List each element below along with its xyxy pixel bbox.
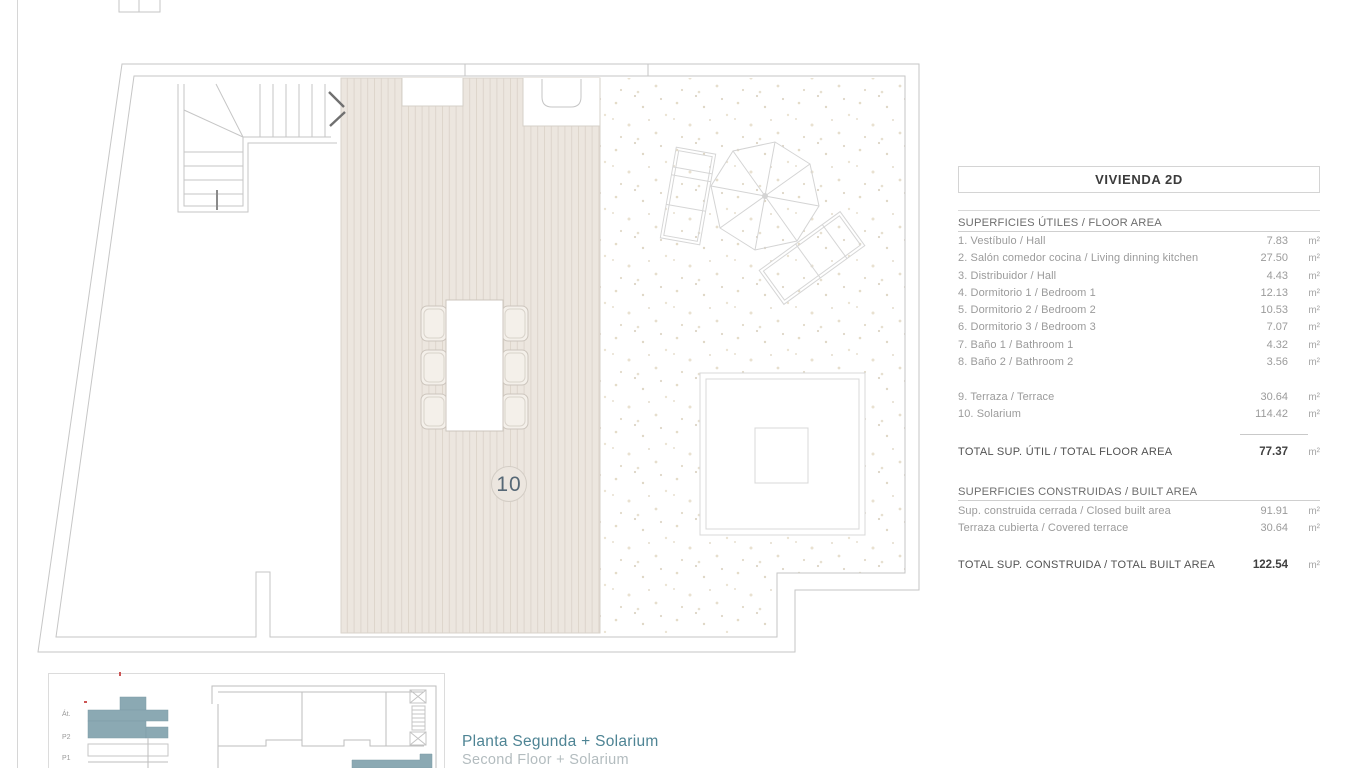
plan-caption-es: Planta Segunda + Solarium	[462, 733, 659, 751]
area-unit: m²	[1294, 354, 1320, 371]
total-built-area-row: TOTAL SUP. CONSTRUIDA / TOTAL BUILT AREA…	[958, 555, 1320, 575]
area-summary-panel: VIVIENDA 2D SUPERFICIES ÚTILES / FLOOR A…	[958, 0, 1320, 768]
main-floor-plan: 10	[38, 64, 919, 652]
room-area-value: 12.13	[1238, 285, 1288, 302]
level-label-p1: P1	[62, 755, 71, 762]
dining-table	[446, 300, 503, 431]
solarium-area	[600, 78, 905, 633]
area-row: 3. Distribuidor / Hall4.43m²	[958, 268, 1320, 285]
room-name: 7. Baño 1 / Bathroom 1	[958, 337, 1238, 354]
deck-recess-center	[523, 78, 600, 126]
total-label: TOTAL SUP. ÚTIL / TOTAL FLOOR AREA	[958, 442, 1238, 462]
floor-area-rows: 1. Vestíbulo / Hall7.83m² 2. Salón comed…	[958, 233, 1320, 371]
room-number-label: 10	[496, 473, 521, 496]
room-area-value: 3.56	[1238, 354, 1288, 371]
area-unit: m²	[1294, 302, 1320, 319]
area-unit: m²	[1294, 406, 1320, 423]
skylight	[700, 373, 865, 535]
area-row: 5. Dormitorio 2 / Bedroom 210.53m²	[958, 302, 1320, 319]
room-name: 3. Distribuidor / Hall	[958, 268, 1238, 285]
divider	[958, 231, 1320, 232]
room-area-value: 114.42	[1238, 406, 1288, 423]
area-unit: m²	[1294, 556, 1320, 576]
built-area-header: SUPERFICIES CONSTRUIDAS / BUILT AREA	[958, 486, 1197, 498]
divider	[958, 210, 1320, 211]
room-area-value: 7.07	[1238, 319, 1288, 336]
section-cut-mark	[119, 672, 121, 676]
unit-title-box: VIVIENDA 2D	[958, 166, 1320, 193]
room-area-value: 30.64	[1238, 389, 1288, 406]
area-row: 10. Solarium114.42m²	[958, 406, 1320, 423]
staircase	[178, 84, 345, 212]
dining-set	[421, 300, 528, 431]
deck-recess-left	[402, 78, 463, 106]
trimmed-frame-mark	[119, 0, 160, 12]
room-name: 6. Dormitorio 3 / Bedroom 3	[958, 319, 1238, 336]
room-name: 8. Baño 2 / Bathroom 2	[958, 354, 1238, 371]
area-row: 2. Salón comedor cocina / Living dinning…	[958, 250, 1320, 267]
area-unit: m²	[1294, 389, 1320, 406]
sum-rule	[1240, 434, 1308, 435]
area-unit: m²	[1294, 233, 1320, 250]
area-row: 8. Baño 2 / Bathroom 23.56m²	[958, 354, 1320, 371]
area-row: 4. Dormitorio 1 / Bedroom 112.13m²	[958, 285, 1320, 302]
room-name: 9. Terraza / Terrace	[958, 389, 1238, 406]
drawing-sheet: 10	[0, 0, 1366, 768]
area-unit: m²	[1294, 319, 1320, 336]
chairs-right	[502, 306, 528, 429]
area-unit: m²	[1294, 520, 1320, 537]
area-row: 9. Terraza / Terrace30.64m²	[958, 389, 1320, 406]
room-name: 5. Dormitorio 2 / Bedroom 2	[958, 302, 1238, 319]
room-number-badge: 10	[492, 467, 527, 502]
area-unit: m²	[1294, 503, 1320, 520]
room-name: 2. Salón comedor cocina / Living dinning…	[958, 250, 1238, 267]
room-name: Terraza cubierta / Covered terrace	[958, 520, 1238, 537]
plan-caption-en: Second Floor + Solarium	[462, 752, 629, 768]
room-name: 4. Dormitorio 1 / Bedroom 1	[958, 285, 1238, 302]
area-unit: m²	[1294, 268, 1320, 285]
unit-title: VIVIENDA 2D	[1095, 172, 1183, 187]
floor-area-header: SUPERFICIES ÚTILES / FLOOR AREA	[958, 217, 1162, 229]
area-row: Sup. construida cerrada / Closed built a…	[958, 503, 1320, 520]
area-row: 7. Baño 1 / Bathroom 14.32m²	[958, 337, 1320, 354]
room-name: Sup. construida cerrada / Closed built a…	[958, 503, 1238, 520]
area-unit: m²	[1294, 285, 1320, 302]
divider	[958, 500, 1320, 501]
room-area-value: 4.32	[1238, 337, 1288, 354]
built-area-rows: Sup. construida cerrada / Closed built a…	[958, 503, 1320, 538]
chairs-left	[421, 306, 447, 429]
area-unit: m²	[1294, 443, 1320, 463]
room-area-value: 27.50	[1238, 250, 1288, 267]
total-value: 77.37	[1238, 442, 1288, 462]
room-area-value: 7.83	[1238, 233, 1288, 250]
location-key-diagram: Át. P2 P1	[49, 672, 445, 768]
level-label-p2: P2	[62, 734, 71, 741]
area-row: 1. Vestíbulo / Hall7.83m²	[958, 233, 1320, 250]
room-area-value: 30.64	[1238, 520, 1288, 537]
area-row: 6. Dormitorio 3 / Bedroom 37.07m²	[958, 319, 1320, 336]
area-row: Terraza cubierta / Covered terrace30.64m…	[958, 520, 1320, 537]
total-label: TOTAL SUP. CONSTRUIDA / TOTAL BUILT AREA	[958, 555, 1238, 575]
total-floor-area-row: TOTAL SUP. ÚTIL / TOTAL FLOOR AREA 77.37…	[958, 442, 1320, 462]
room-name: 10. Solarium	[958, 406, 1238, 423]
room-area-value: 10.53	[1238, 302, 1288, 319]
area-unit: m²	[1294, 250, 1320, 267]
exterior-area-rows: 9. Terraza / Terrace30.64m² 10. Solarium…	[958, 389, 1320, 424]
room-area-value: 91.91	[1238, 503, 1288, 520]
section-cut-mark	[84, 701, 87, 703]
room-area-value: 4.43	[1238, 268, 1288, 285]
level-label-atico: Át.	[62, 709, 71, 718]
room-name: 1. Vestíbulo / Hall	[958, 233, 1238, 250]
total-value: 122.54	[1238, 555, 1288, 575]
area-unit: m²	[1294, 337, 1320, 354]
